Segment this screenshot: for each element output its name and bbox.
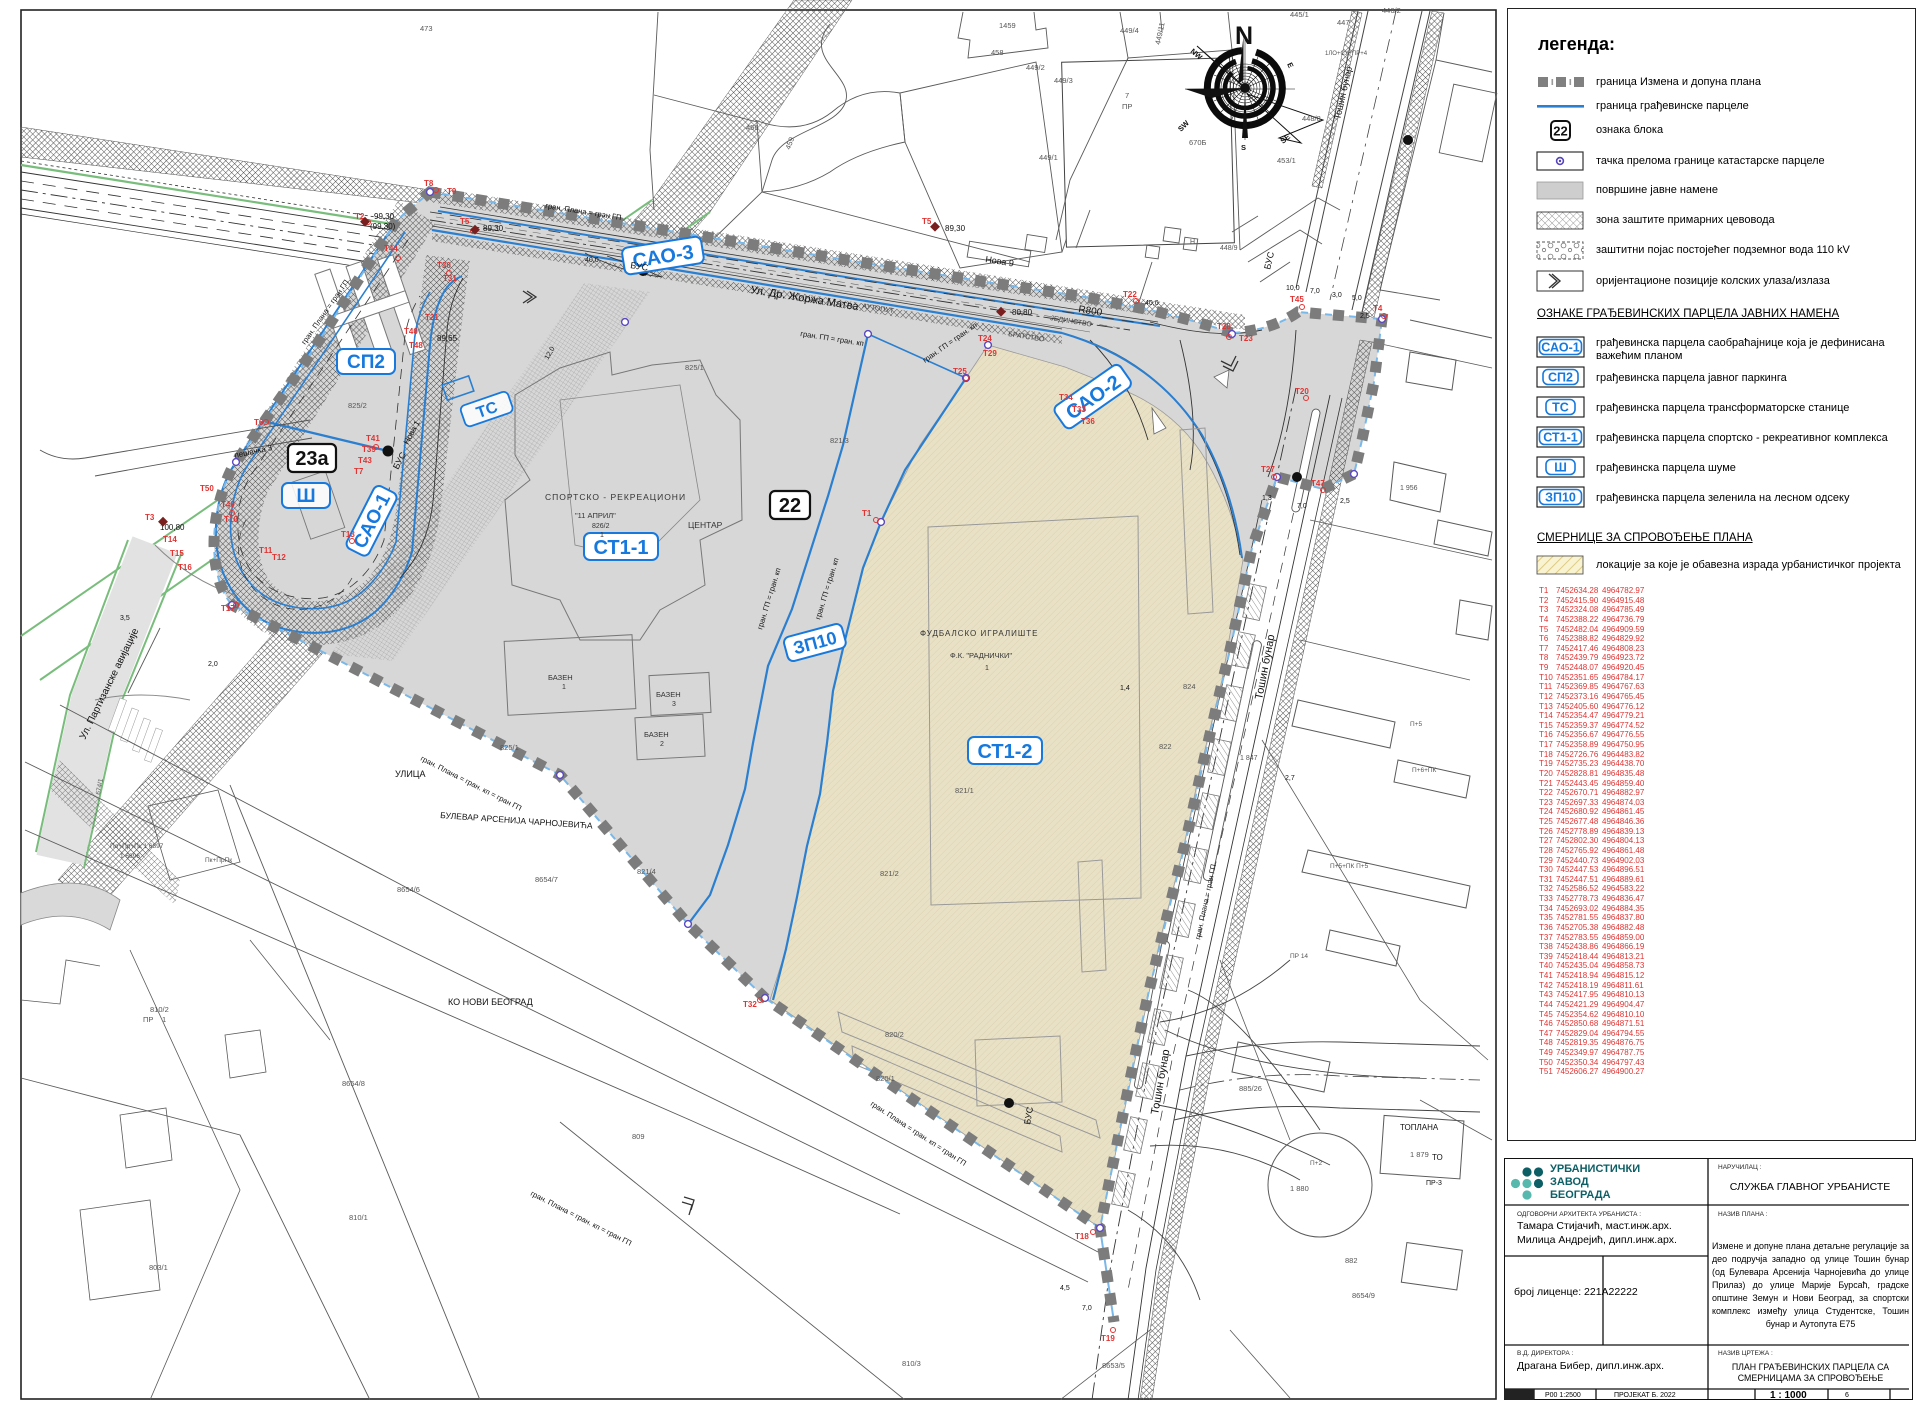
- svg-text:Т3: Т3: [145, 513, 155, 522]
- svg-text:КО НОВИ БЕОГРАД: КО НОВИ БЕОГРАД: [448, 997, 533, 1007]
- svg-text:1,3: 1,3: [1262, 495, 1272, 502]
- svg-text:ТС: ТС: [1552, 401, 1569, 415]
- svg-text:Т39: Т39: [362, 445, 376, 454]
- svg-text:4,5: 4,5: [1060, 1285, 1070, 1292]
- svg-text:803/1: 803/1: [149, 1263, 168, 1272]
- svg-text:Т47: Т47: [1311, 479, 1325, 488]
- svg-text:1: 1: [985, 665, 989, 672]
- svg-text:Т9: Т9: [447, 187, 457, 196]
- svg-text:809: 809: [632, 1132, 645, 1141]
- svg-text:Т5: Т5: [460, 217, 470, 226]
- svg-text:822: 822: [1159, 742, 1172, 751]
- svg-text:ФУДБАЛСКО ИГРАЛИШТЕ: ФУДБАЛСКО ИГРАЛИШТЕ: [920, 629, 1038, 638]
- svg-text:1: 1: [562, 684, 566, 691]
- svg-text:Ф.К. "РАДНИЧКИ": Ф.К. "РАДНИЧКИ": [950, 651, 1012, 660]
- svg-text:Т5: Т5: [922, 217, 932, 226]
- svg-text:7,0: 7,0: [1310, 288, 1320, 295]
- svg-text:N: N: [1235, 22, 1253, 50]
- svg-text:448/8: 448/8: [1302, 114, 1321, 123]
- svg-text:Т21: Т21: [425, 313, 439, 322]
- svg-text:8654/6: 8654/6: [397, 885, 420, 894]
- svg-text:Т41: Т41: [366, 434, 380, 443]
- svg-text:824: 824: [1183, 682, 1196, 691]
- svg-text:449/2: 449/2: [1026, 63, 1045, 72]
- svg-text:Т14: Т14: [163, 535, 177, 544]
- svg-text:1 956: 1 956: [1400, 485, 1418, 492]
- svg-text:Пк+ПрПк: Пк+ПрПк: [205, 857, 232, 864]
- svg-text:40,0: 40,0: [1145, 300, 1159, 307]
- svg-text:Т50: Т50: [200, 484, 214, 493]
- svg-text:449/1: 449/1: [1039, 153, 1058, 162]
- svg-text:89,30: 89,30: [483, 224, 504, 233]
- svg-text:453/1: 453/1: [1277, 156, 1296, 165]
- svg-text:2,5: 2,5: [1340, 498, 1350, 505]
- svg-text:СТ1-2: СТ1-2: [977, 741, 1032, 763]
- svg-text:1 847: 1 847: [1240, 755, 1258, 762]
- svg-text:ПР: ПР: [1122, 102, 1132, 111]
- svg-text:Т1: Т1: [862, 509, 872, 518]
- svg-text:ТО: ТО: [1432, 1153, 1443, 1162]
- svg-text:473: 473: [420, 24, 433, 33]
- svg-text:Ш: Ш: [296, 486, 315, 507]
- svg-text:1 6696: 1 6696: [120, 853, 140, 860]
- svg-text:458: 458: [991, 48, 1004, 57]
- svg-text:810/1: 810/1: [349, 1213, 368, 1222]
- svg-text:(99,30): (99,30): [370, 222, 396, 231]
- svg-text:ЗП10: ЗП10: [1545, 491, 1576, 505]
- svg-text:1: 1: [162, 1015, 166, 1024]
- svg-text:S: S: [1241, 143, 1246, 152]
- svg-text:Т22: Т22: [1123, 290, 1137, 299]
- svg-text:Т43: Т43: [358, 456, 372, 465]
- svg-text:СПОРТСКО - РЕКРЕАЦИОНИ: СПОРТСКО - РЕКРЕАЦИОНИ: [545, 492, 686, 502]
- svg-text:Т23: Т23: [1239, 334, 1253, 343]
- svg-text:Т11: Т11: [259, 546, 273, 555]
- svg-text:Т34: Т34: [1059, 393, 1073, 402]
- svg-text:П+2: П+2: [1310, 1160, 1322, 1167]
- svg-text:СП2: СП2: [347, 352, 385, 373]
- svg-text:7,0: 7,0: [1082, 1305, 1092, 1312]
- svg-text:882: 882: [1345, 1256, 1358, 1265]
- svg-text:ПР-3: ПР-3: [1426, 1180, 1442, 1187]
- svg-text:П+5: П+5: [1410, 721, 1422, 728]
- svg-text:2,0: 2,0: [208, 661, 218, 668]
- svg-text:7: 7: [1125, 91, 1129, 100]
- svg-text:СП2: СП2: [1548, 371, 1573, 385]
- svg-text:П+5+ПК П+5: П+5+ПК П+5: [1330, 863, 1369, 870]
- svg-text:449/4: 449/4: [1120, 26, 1139, 35]
- svg-text:1 879: 1 879: [1410, 1150, 1429, 1159]
- svg-text:820/1: 820/1: [876, 1074, 895, 1083]
- svg-text:40,0: 40,0: [585, 257, 599, 264]
- svg-text:Т30: Т30: [437, 261, 451, 270]
- svg-text:456: 456: [746, 123, 759, 132]
- svg-text:8654/8: 8654/8: [342, 1079, 365, 1088]
- svg-text:ТОПЛАНА: ТОПЛАНА: [1400, 1123, 1439, 1132]
- svg-text:1: 1: [600, 532, 604, 539]
- svg-text:Т33: Т33: [1072, 405, 1086, 414]
- svg-text:Т4: Т4: [1373, 304, 1383, 313]
- svg-text:Т44: Т44: [384, 244, 398, 253]
- svg-text:99,30: 99,30: [374, 212, 395, 221]
- svg-text:БАЗЕН: БАЗЕН: [644, 730, 669, 739]
- svg-text:САО-1: САО-1: [1541, 341, 1579, 355]
- svg-text:3,0: 3,0: [1332, 292, 1342, 299]
- svg-text:Т12: Т12: [272, 553, 286, 562]
- svg-text:Н: Н: [1190, 239, 1195, 246]
- svg-text:Т24: Т24: [978, 334, 992, 343]
- svg-text:УЛИЦА: УЛИЦА: [395, 769, 425, 779]
- svg-text:П+6+ПК: П+6+ПК: [1412, 767, 1437, 774]
- svg-text:2,7: 2,7: [1285, 775, 1295, 782]
- svg-text:22: 22: [1553, 124, 1567, 139]
- svg-text:Т13: Т13: [341, 530, 355, 539]
- svg-text:821/1: 821/1: [955, 786, 974, 795]
- svg-text:2: 2: [660, 741, 664, 748]
- svg-text:Т32: Т32: [743, 1000, 757, 1009]
- svg-text:ЦЕНТАР: ЦЕНТАР: [688, 520, 723, 530]
- svg-text:Т25: Т25: [953, 367, 967, 376]
- svg-text:5,0: 5,0: [1352, 295, 1362, 302]
- svg-text:8654/9: 8654/9: [1352, 1291, 1375, 1300]
- svg-text:825/1: 825/1: [500, 743, 519, 752]
- svg-text:Т49: Т49: [221, 500, 235, 509]
- svg-text:3: 3: [672, 701, 676, 708]
- svg-text:449/3: 449/3: [1054, 76, 1073, 85]
- svg-text:Т20: Т20: [1295, 387, 1309, 396]
- svg-text:89,65: 89,65: [437, 334, 458, 343]
- svg-text:2,5: 2,5: [1360, 313, 1370, 320]
- svg-text:БАЗЕН: БАЗЕН: [656, 690, 681, 699]
- svg-text:8653/5: 8653/5: [1102, 1361, 1125, 1370]
- svg-text:Т29: Т29: [983, 349, 997, 358]
- svg-text:7,0: 7,0: [1297, 503, 1307, 510]
- svg-text:445/1: 445/1: [1290, 10, 1309, 19]
- svg-text:1,4: 1,4: [1120, 685, 1130, 692]
- svg-text:825/2: 825/2: [348, 401, 367, 410]
- svg-text:Т8: Т8: [424, 179, 434, 188]
- svg-text:1ЛО+СУ+ПР+4: 1ЛО+СУ+ПР+4: [1325, 51, 1368, 57]
- svg-text:Т15: Т15: [170, 549, 184, 558]
- svg-text:Т6: Т6: [254, 418, 264, 427]
- svg-text:825/1: 825/1: [685, 363, 704, 372]
- svg-text:810/3: 810/3: [902, 1359, 921, 1368]
- svg-text:Т36: Т36: [1081, 417, 1095, 426]
- svg-text:СТ1-1: СТ1-1: [593, 537, 648, 559]
- svg-text:Т27: Т27: [1261, 465, 1275, 474]
- svg-text:1459: 1459: [999, 21, 1016, 30]
- svg-text:Т19: Т19: [1101, 1334, 1115, 1343]
- svg-text:821/4: 821/4: [637, 867, 656, 876]
- svg-text:23а: 23а: [295, 448, 329, 470]
- svg-text:Т18: Т18: [1075, 1232, 1089, 1241]
- svg-text:89,30: 89,30: [945, 224, 966, 233]
- svg-text:821/2: 821/2: [880, 869, 899, 878]
- svg-text:22: 22: [779, 495, 801, 517]
- svg-text:ПР 14: ПР 14: [1290, 953, 1308, 960]
- svg-text:446/2: 446/2: [1382, 6, 1401, 15]
- svg-text:Т28: Т28: [1217, 322, 1231, 331]
- svg-text:447: 447: [1337, 18, 1350, 27]
- svg-text:Т48: Т48: [409, 341, 423, 350]
- svg-text:БАЗЕН: БАЗЕН: [548, 673, 573, 682]
- svg-text:1 880: 1 880: [1290, 1184, 1309, 1193]
- svg-text:ПР: ПР: [143, 1015, 153, 1024]
- svg-text:Т16: Т16: [178, 563, 192, 572]
- svg-text:Т10: Т10: [224, 515, 238, 524]
- svg-text:826/2: 826/2: [592, 523, 610, 530]
- svg-text:Т45: Т45: [1290, 295, 1304, 304]
- svg-text:448/9: 448/9: [1220, 245, 1238, 252]
- svg-text:80,80: 80,80: [1012, 308, 1033, 317]
- svg-text:820/2: 820/2: [885, 1030, 904, 1039]
- svg-text:Т7: Т7: [354, 467, 364, 476]
- svg-text:670Б: 670Б: [1189, 138, 1207, 147]
- svg-text:Т40: Т40: [404, 327, 418, 336]
- svg-text:3,5: 3,5: [120, 615, 130, 622]
- svg-text:"11 АПРИЛ": "11 АПРИЛ": [575, 511, 616, 520]
- svg-text:По+Пр+Пк 1 6897: По+Пр+Пк 1 6897: [110, 843, 164, 850]
- svg-text:10,0: 10,0: [1286, 285, 1300, 292]
- svg-text:885/26: 885/26: [1239, 1084, 1262, 1093]
- svg-text:СТ1-1: СТ1-1: [1543, 431, 1577, 445]
- svg-text:810/2: 810/2: [150, 1005, 169, 1014]
- svg-text:Ш: Ш: [1554, 461, 1567, 475]
- svg-text:821/3: 821/3: [830, 436, 849, 445]
- svg-text:8654/7: 8654/7: [535, 875, 558, 884]
